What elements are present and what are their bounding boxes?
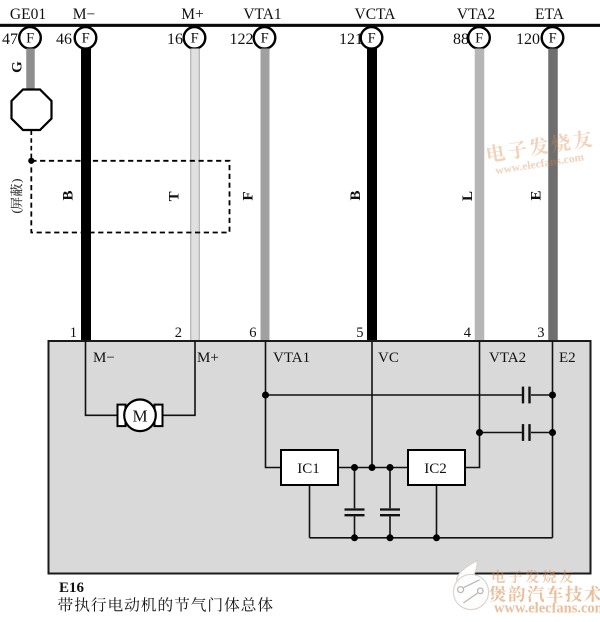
svg-text:E2: E2 <box>559 350 576 366</box>
svg-text:B: B <box>60 190 76 200</box>
svg-text:5: 5 <box>356 325 363 341</box>
svg-text:B: B <box>348 190 364 200</box>
svg-text:(: ( <box>8 209 23 213</box>
svg-text:F: F <box>26 31 34 47</box>
svg-text:6: 6 <box>249 325 256 341</box>
svg-text:www.elecfans.com: www.elecfans.com <box>494 601 600 617</box>
svg-text:F: F <box>475 31 483 47</box>
svg-text:VTA1: VTA1 <box>243 6 281 23</box>
svg-text:M+: M+ <box>181 6 204 23</box>
svg-text:2: 2 <box>175 325 182 341</box>
svg-text:121: 121 <box>339 31 363 48</box>
svg-text:T: T <box>167 191 183 201</box>
svg-text:G: G <box>10 61 26 73</box>
svg-text:E: E <box>529 190 545 200</box>
svg-text:F: F <box>549 31 557 47</box>
svg-text:GE01: GE01 <box>10 6 46 23</box>
svg-text:VC: VC <box>378 350 399 366</box>
svg-text:16: 16 <box>167 31 183 48</box>
svg-text:46: 46 <box>56 31 72 48</box>
svg-text:): ) <box>8 179 23 183</box>
svg-text:47: 47 <box>2 31 18 48</box>
svg-text:ETA: ETA <box>535 6 565 23</box>
svg-text:1: 1 <box>70 325 77 341</box>
svg-text:F: F <box>241 191 257 200</box>
svg-text:F: F <box>368 31 376 47</box>
svg-text:M−: M− <box>93 350 115 366</box>
svg-text:VTA1: VTA1 <box>273 350 310 366</box>
svg-text:F: F <box>191 31 199 47</box>
svg-text:M−: M− <box>73 6 96 23</box>
svg-text:L: L <box>460 191 476 201</box>
svg-text:120: 120 <box>516 31 540 48</box>
svg-text:4: 4 <box>464 325 472 341</box>
svg-text:VTA2: VTA2 <box>489 350 526 366</box>
svg-text:IC2: IC2 <box>424 461 447 477</box>
svg-text:IC1: IC1 <box>297 461 320 477</box>
svg-text:E16: E16 <box>59 580 85 596</box>
svg-text:M+: M+ <box>197 350 219 366</box>
svg-text:M: M <box>132 406 147 425</box>
svg-text:F: F <box>261 31 269 47</box>
svg-text:VCTA: VCTA <box>355 6 397 23</box>
svg-text:88: 88 <box>453 31 469 48</box>
svg-text:F: F <box>82 31 90 47</box>
svg-text:3: 3 <box>537 325 544 341</box>
svg-text:VTA2: VTA2 <box>457 6 495 23</box>
svg-text:122: 122 <box>230 31 254 48</box>
